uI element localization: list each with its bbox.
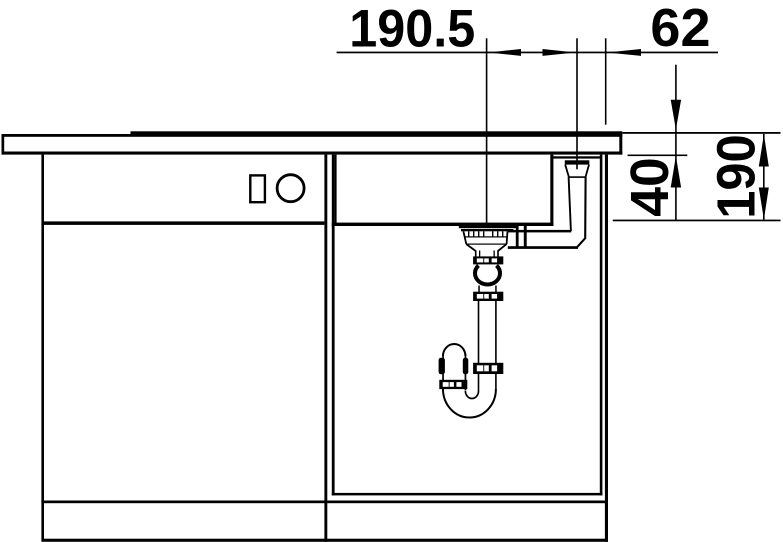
svg-text:190.5: 190.5 [349,0,475,58]
svg-text:62: 62 [650,0,710,58]
svg-text:40: 40 [621,157,680,217]
svg-text:190: 190 [706,134,766,219]
